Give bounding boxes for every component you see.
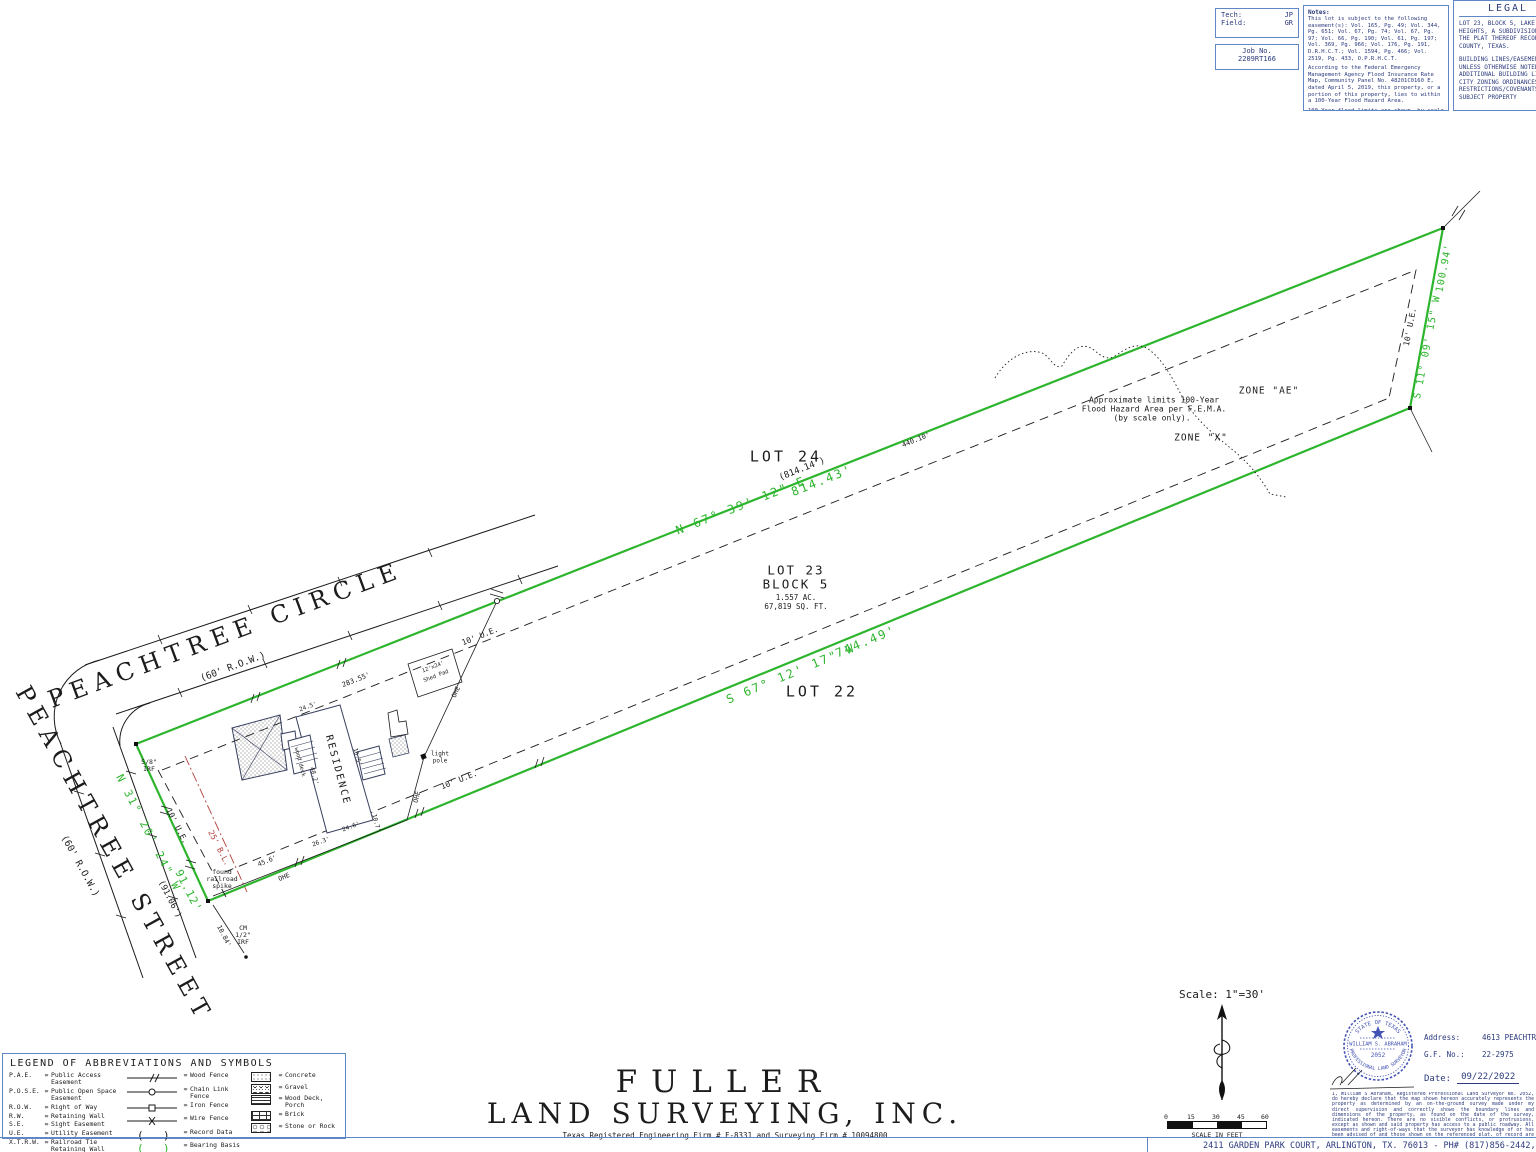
legal-line: CITY ZONING ORDINANCES (1459, 79, 1536, 87)
flood-note-line2: Flood Hazard Area per F.E.M.A. (1082, 405, 1227, 414)
legend-title: LEGEND OF ABBREVIATIONS AND SYMBOLS (10, 1058, 273, 1069)
tech-value: JP (1285, 11, 1293, 19)
bottom-bar-divider (1147, 1137, 1148, 1152)
zone-x-label: ZONE "X" (1174, 433, 1228, 444)
svg-text:): ) (163, 1142, 170, 1152)
light-pole-label-1: light (431, 751, 449, 758)
field-label: Field: (1221, 19, 1246, 27)
concrete-pad (389, 735, 409, 757)
company-name-line2: LAND SURVEYING, INC. (430, 1099, 1020, 1130)
legend-abbrev-row: R.W.=Retaining Wall (9, 1113, 121, 1120)
legend-abbrev-row: X.T.R.W.=Railroad Tie Retaining Wall (9, 1139, 121, 1152)
legend-fill-row: =Stone or Rock (251, 1123, 345, 1133)
surveyor-stamp: STATE OF TEXAS WILLIAM S. ABRAHAM 2052 P… (1330, 1012, 1414, 1089)
utility-easement-label-east: 10' U.E. (1402, 307, 1418, 347)
notes-box: Notes: This lot is subject to the follow… (1303, 5, 1449, 111)
ohe-label-2: OHE (412, 790, 423, 803)
legend-fills-column: =Concrete=Gravel=Wood Deck, Porch=Brick=… (251, 1072, 345, 1134)
cm-irf-label-3: IRF (237, 938, 249, 946)
dimension-263: 26.3' (311, 836, 330, 849)
bearing-north-line: N 67° 39' 12" E (674, 474, 808, 538)
legal-line: COUNTY, TEXAS. (1459, 43, 1536, 51)
utility-pole-icon (494, 598, 499, 603)
brick-swatch-icon (251, 1111, 271, 1121)
legal-line: LOT 23, BLOCK 5, LAKE GARDEN (1459, 20, 1536, 28)
utility-easement-label-south: 10' U.E. (439, 769, 478, 791)
utility-easement-label-north: 10' U.E. (460, 625, 499, 647)
sheet-bottom-rule (0, 1137, 1536, 1138)
scale-bar: 0 15 30 45 60 SCALE IN FEET (1167, 1113, 1267, 1139)
legend-fill-row: =Wood Deck, Porch (251, 1095, 345, 1109)
notes-paragraph-2: According to the Federal Emergency Manag… (1308, 65, 1444, 105)
stamp-name-text: WILLIAM S. ABRAHAM (1349, 1042, 1406, 1048)
square-footage-label: 67,819 SQ. FT. (764, 602, 827, 611)
legend-line-symbol-row: =Chain Link Fence (125, 1086, 245, 1100)
stamp-star-icon (1371, 1026, 1385, 1039)
legend-line-symbol-row: =Iron Fence (125, 1102, 245, 1114)
scale-tick-45: 45 (1237, 1113, 1245, 1121)
plat-drawing: STATE OF TEXAS WILLIAM S. ABRAHAM 2052 P… (0, 0, 1536, 1152)
legend-fill-row: =Gravel (251, 1084, 345, 1094)
wire-fence-icon (125, 1115, 181, 1127)
north-arrow-icon (1214, 1004, 1230, 1100)
dimension-283: 283.55' (341, 671, 371, 689)
ohe-label-1: OHE (450, 685, 462, 699)
bearing-basis-icon: () (125, 1142, 181, 1152)
scale-tick-0: 0 (1164, 1113, 1168, 1121)
tech-field-box: Tech:JP Field:GR (1215, 8, 1299, 38)
gravel-swatch-icon (251, 1084, 271, 1094)
dimension-1084: 10.84' (215, 924, 233, 949)
stamp-number-text: 2052 (1371, 1052, 1386, 1059)
address-label: Address: (1424, 1033, 1482, 1042)
flood-note-line1: Approximate limits 100-Year (1089, 396, 1219, 405)
certification-statement: I, William S Abraham, Registered Profess… (1332, 1092, 1534, 1136)
pad-outline (388, 710, 408, 737)
company-address-bar: 2411 GARDEN PARK COURT, ARLINGTON, TX. 7… (1203, 1141, 1536, 1151)
scale-tick-60: 60 (1261, 1113, 1269, 1121)
record-data-icon: () (125, 1129, 181, 1141)
wood-deck-swatch-icon (251, 1095, 271, 1105)
utility-easement-label-west: 10' U.E. (164, 807, 190, 845)
block-5-label: BLOCK 5 (763, 577, 830, 592)
notes-paragraph-1: This lot is subject to the following eas… (1308, 16, 1444, 62)
scale-label: Scale: 1"=30' (1158, 988, 1286, 1001)
legal-description-box: LEGAL LOT 23, BLOCK 5, LAKE GARDENHEIGHT… (1453, 0, 1536, 111)
lot-23-label: LOT 23 (767, 563, 824, 578)
legend-lines-column: =Wood Fence=Chain Link Fence=Iron Fence=… (125, 1072, 245, 1152)
flood-note-line3: (by scale only). (1113, 414, 1190, 423)
legal-block-2: BUILDING LINES/EASEMENTSUNLESS OTHERWISE… (1459, 56, 1536, 101)
lot-22-label: LOT 22 (786, 683, 858, 701)
legend-abbrev-row: R.O.W.=Right of Way (9, 1104, 121, 1111)
acreage-label: 1.557 AC. (776, 593, 817, 602)
legend-abbrev-column: P.A.E.=Public Access EasementP.O.S.E.=Pu… (9, 1072, 121, 1152)
job-number-label: Job No. (1220, 47, 1294, 55)
legend-fill-row: =Brick (251, 1111, 345, 1121)
gf-number-row: G.F. No.: 22-2975 (1424, 1050, 1514, 1059)
stone-swatch-icon (251, 1123, 271, 1133)
legend-line-symbol-row: =Wire Fence (125, 1115, 245, 1127)
address-row: Address: 4613 PEACHTREE S (1424, 1033, 1536, 1042)
legend-fill-row: =Concrete (251, 1072, 345, 1082)
gf-number-label: G.F. No.: (1424, 1050, 1482, 1059)
dimension-107: 10.7' (370, 813, 381, 832)
legal-line: BUILDING LINES/EASEMENTS (1459, 56, 1536, 64)
dimension-456: 45.6' (256, 854, 277, 869)
light-pole-icon (420, 753, 426, 759)
legal-line: HEIGHTS, A SUBDIVISION IN (1459, 28, 1536, 36)
dimension-440: 440.10' (901, 431, 931, 449)
chain-link-fence-icon (125, 1086, 181, 1098)
legend-abbrev-row: S.E.=Sight Easement (9, 1121, 121, 1128)
date-label: Date: (1424, 1074, 1451, 1084)
job-number-box: Job No. 2209RT166 (1215, 44, 1299, 70)
scale-tick-15: 15 (1187, 1113, 1195, 1121)
date-row: Date: 09/22/2022 (1424, 1072, 1519, 1084)
legend-abbrev-row: P.O.S.E.=Public Open Space Easement (9, 1088, 121, 1102)
field-value: GR (1285, 19, 1293, 27)
svg-text:(: ( (137, 1142, 144, 1152)
scale-tick-30: 30 (1212, 1113, 1220, 1121)
found-spike-label-3: spike (212, 882, 232, 890)
svg-text:(: ( (137, 1129, 144, 1141)
legend-line-symbol-row: ()=Bearing Basis (125, 1142, 245, 1152)
covered-porch (232, 715, 287, 780)
legend-abbrev-row: P.A.E.=Public Access Easement (9, 1072, 121, 1086)
job-number-value: 2209RT166 (1220, 55, 1294, 63)
distance-east-line: 100.94' (1434, 243, 1454, 293)
irf-label-2: IRF (143, 765, 155, 773)
date-value: 09/22/2022 (1457, 1072, 1519, 1084)
legend-line-symbol-row: ()=Record Data (125, 1129, 245, 1141)
legal-line: SUBJECT PROPERTY (1459, 94, 1536, 102)
legend-line-symbol-row: =Wood Fence (125, 1072, 245, 1084)
light-pole-label-2: pole (433, 758, 448, 765)
iron-fence-icon (125, 1102, 181, 1114)
legal-line: ADDITIONAL BUILDING LINES (1459, 71, 1536, 79)
legend-box: LEGEND OF ABBREVIATIONS AND SYMBOLS P.A.… (2, 1053, 346, 1139)
notes-title: Notes: (1308, 9, 1444, 16)
company-title-block: FULLER LAND SURVEYING, INC. Texas Regist… (430, 1066, 1020, 1140)
cm-irf-monument (244, 955, 248, 959)
address-value: 4613 PEACHTREE S (1482, 1033, 1536, 1042)
legal-title: LEGAL (1459, 3, 1536, 17)
legal-line: THE PLAT THEREOF RECORDED (1459, 35, 1536, 43)
building-line-label: 25' B.L. (206, 829, 232, 867)
wood-fence-icon (125, 1072, 181, 1084)
zone-ae-label: ZONE "AE" (1239, 386, 1299, 397)
legal-block-1: LOT 23, BLOCK 5, LAKE GARDENHEIGHTS, A S… (1459, 20, 1536, 50)
legal-line: UNLESS OTHERWISE NOTED (1459, 64, 1536, 72)
concrete-swatch-icon (251, 1072, 271, 1082)
legal-line: RESTRICTIONS/COVENANTS (1459, 86, 1536, 94)
svg-text:): ) (163, 1129, 170, 1141)
company-name-line1: FULLER (430, 1066, 1020, 1099)
registration-line: Texas Registered Engineering Firm # F-83… (430, 1131, 1020, 1140)
tech-label: Tech: (1221, 11, 1242, 19)
notes-paragraph-3: 100-Year flood limits are shown, by scal… (1308, 108, 1444, 111)
survey-plat-sheet: STATE OF TEXAS WILLIAM S. ABRAHAM 2052 P… (0, 0, 1536, 1152)
gf-number-value: 22-2975 (1482, 1050, 1514, 1059)
drawing-labels: PEACHTREE CIRCLE(60' R.O.W.)PEACHTREE ST… (10, 243, 1455, 1028)
